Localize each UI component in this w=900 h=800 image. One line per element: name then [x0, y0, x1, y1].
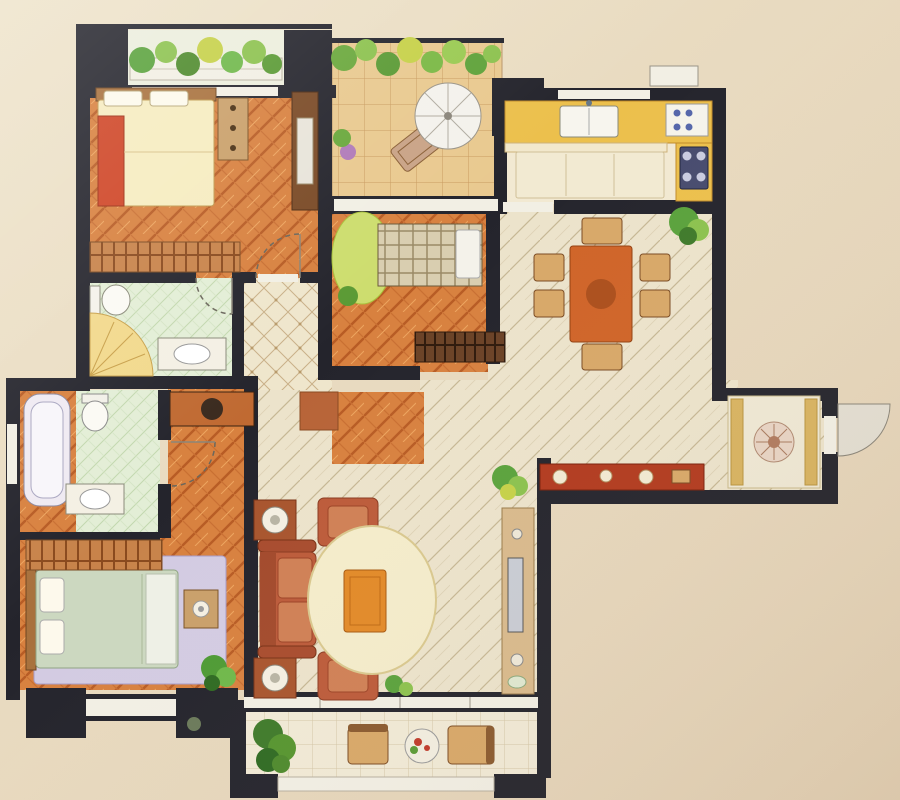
photo-sheen	[0, 0, 900, 800]
floor-plan	[0, 0, 900, 800]
floor-plan-page	[0, 0, 900, 800]
floor-plan-canvas	[0, 0, 900, 800]
overlay	[0, 0, 900, 800]
